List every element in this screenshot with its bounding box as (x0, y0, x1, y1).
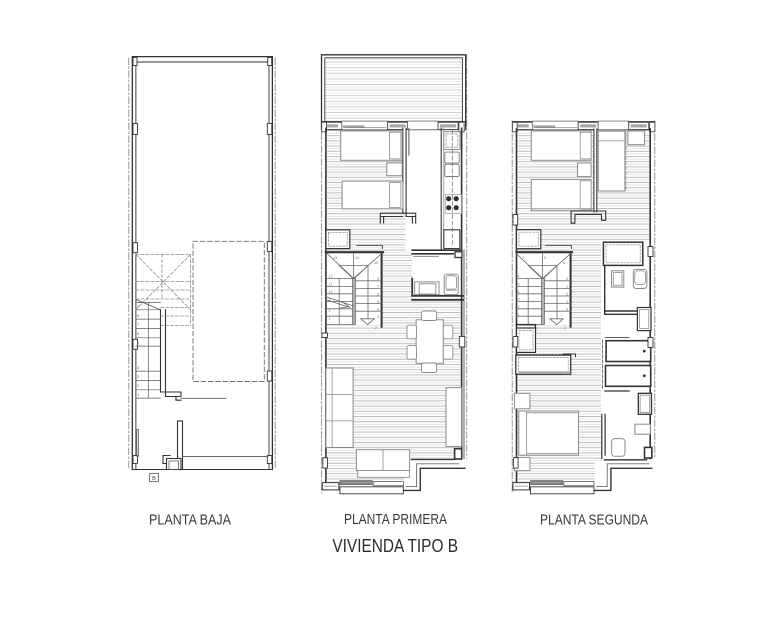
svg-text:8: 8 (377, 277, 379, 281)
svg-text:10: 10 (329, 290, 333, 294)
svg-text:13: 13 (333, 256, 337, 260)
svg-text:3: 3 (566, 300, 568, 304)
svg-text:5: 5 (518, 283, 520, 287)
svg-text:3: 3 (377, 315, 379, 319)
svg-text:PLANTA PRIMERA: PLANTA PRIMERA (344, 512, 447, 528)
svg-text:4: 4 (377, 308, 379, 312)
svg-text:1: 1 (518, 313, 520, 317)
svg-text:7: 7 (377, 285, 379, 289)
svg-text:VIVIENDA TIPO B: VIVIENDA TIPO B (332, 535, 458, 556)
svg-text:B: B (152, 476, 156, 482)
svg-text:PLANTA BAJA: PLANTA BAJA (149, 512, 231, 528)
svg-text:3: 3 (518, 298, 520, 302)
svg-text:9: 9 (329, 298, 331, 302)
svg-text:6: 6 (377, 293, 379, 297)
svg-text:1: 1 (329, 317, 331, 321)
svg-text:12: 12 (329, 275, 333, 279)
svg-text:4: 4 (566, 308, 568, 312)
svg-text:5: 5 (544, 256, 546, 260)
svg-text:2: 2 (564, 326, 566, 330)
svg-text:2: 2 (329, 309, 331, 313)
svg-text:7: 7 (522, 256, 524, 260)
svg-text:5: 5 (377, 300, 379, 304)
svg-text:2: 2 (566, 293, 568, 297)
svg-text:6: 6 (518, 290, 520, 294)
svg-text:11: 11 (329, 283, 333, 287)
svg-text:14: 14 (355, 256, 359, 260)
svg-text:1: 1 (566, 285, 568, 289)
svg-text:4: 4 (518, 275, 520, 279)
svg-text:2: 2 (375, 326, 377, 330)
svg-text:15: 15 (374, 261, 378, 265)
svg-text:PLANTA SEGUNDA: PLANTA SEGUNDA (540, 512, 648, 528)
svg-text:6: 6 (563, 261, 565, 265)
svg-text:2: 2 (518, 305, 520, 309)
svg-text:0: 0 (566, 277, 568, 281)
